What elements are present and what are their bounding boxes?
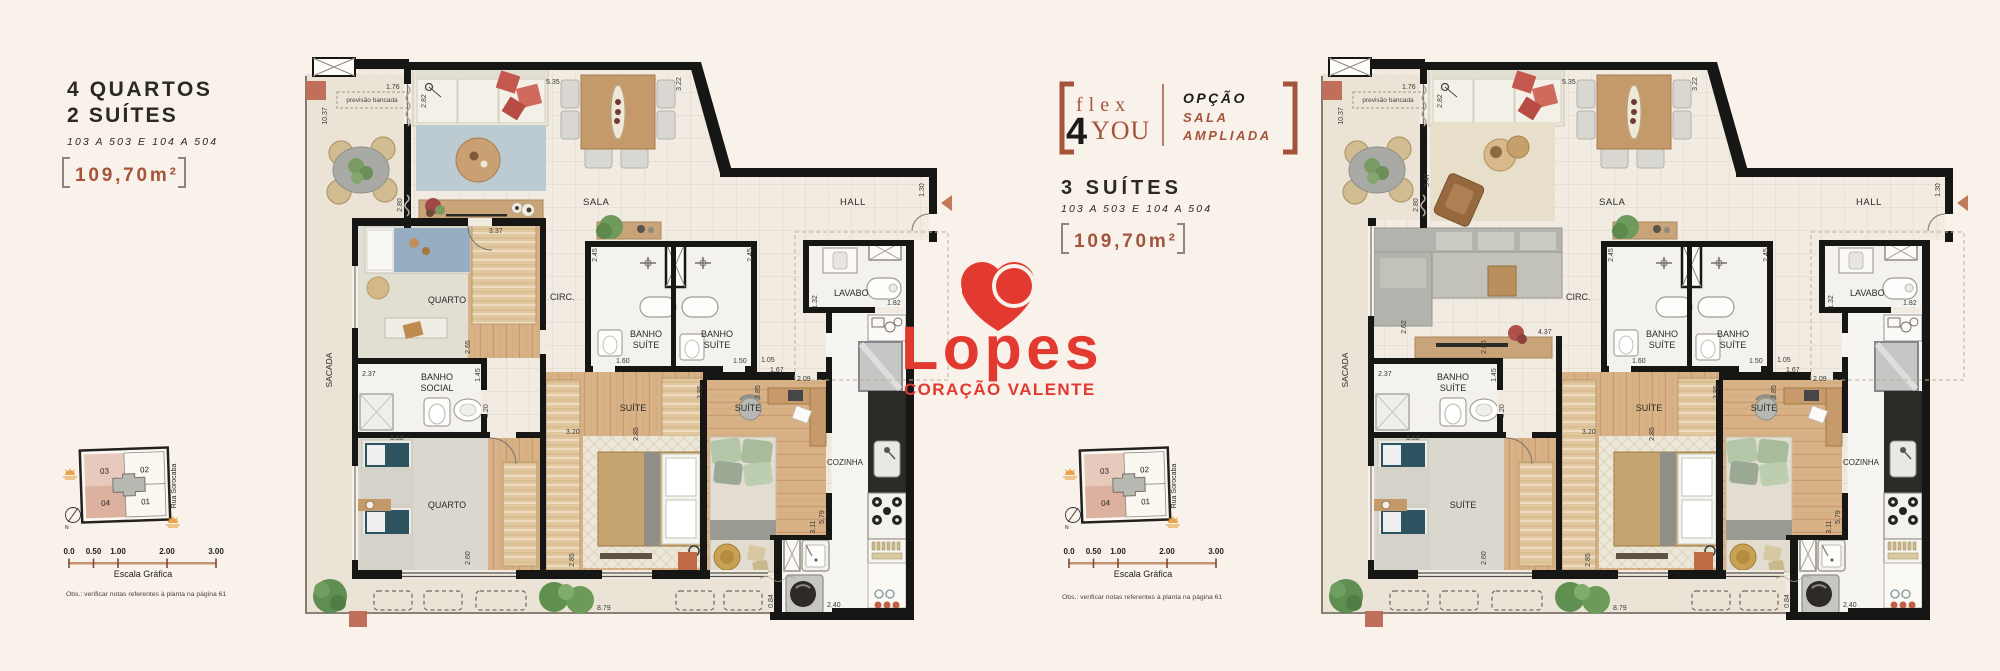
svg-text:0.50: 0.50 xyxy=(1086,547,1102,556)
svg-text:8.79: 8.79 xyxy=(1613,605,1627,612)
svg-text:1.00: 1.00 xyxy=(1110,547,1126,556)
svg-text:BANHO: BANHO xyxy=(421,372,453,382)
svg-text:2.60: 2.60 xyxy=(465,551,472,565)
svg-text:SACADA: SACADA xyxy=(1340,352,1350,387)
svg-text:5.79: 5.79 xyxy=(819,510,826,524)
svg-text:10.37: 10.37 xyxy=(322,107,329,125)
svg-text:SUÍTE: SUÍTE xyxy=(1440,383,1467,393)
svg-text:03: 03 xyxy=(100,467,110,476)
svg-text:Escala Gráfica: Escala Gráfica xyxy=(1114,569,1173,579)
svg-text:CIRC.: CIRC. xyxy=(1566,292,1591,302)
svg-text:0.0: 0.0 xyxy=(63,547,75,556)
svg-text:2 SUÍTES: 2 SUÍTES xyxy=(67,104,178,127)
svg-text:2.45: 2.45 xyxy=(747,248,754,262)
svg-text:2.37: 2.37 xyxy=(1378,371,1392,378)
svg-text:3.20: 3.20 xyxy=(1582,429,1596,436)
svg-text:5.35: 5.35 xyxy=(546,79,560,86)
svg-text:2.80: 2.80 xyxy=(1413,198,1420,212)
svg-text:01: 01 xyxy=(141,497,151,506)
svg-text:1.05: 1.05 xyxy=(1777,357,1791,364)
svg-text:SUÍTE: SUÍTE xyxy=(1720,340,1747,350)
svg-text:SUÍTE: SUÍTE xyxy=(704,340,731,350)
svg-text:2.40: 2.40 xyxy=(1843,602,1857,609)
svg-text:3.00: 3.00 xyxy=(208,547,224,556)
svg-text:OPÇÃO: OPÇÃO xyxy=(1183,89,1247,106)
svg-text:1.76: 1.76 xyxy=(386,84,400,91)
svg-text:1.20: 1.20 xyxy=(1499,404,1506,418)
svg-text:BANHO: BANHO xyxy=(1646,329,1678,339)
svg-text:previsão bancada: previsão bancada xyxy=(1362,97,1414,104)
svg-text:2.45: 2.45 xyxy=(1608,248,1615,262)
svg-text:1.60: 1.60 xyxy=(1632,358,1646,365)
svg-text:2.45: 2.45 xyxy=(1763,248,1770,262)
svg-text:BANHO: BANHO xyxy=(630,329,662,339)
svg-text:Rua Sorocaba: Rua Sorocaba xyxy=(171,464,178,509)
svg-text:1.50: 1.50 xyxy=(1749,358,1763,365)
svg-text:3.00: 3.00 xyxy=(1208,547,1224,556)
svg-text:BANHO: BANHO xyxy=(701,329,733,339)
svg-text:2.80: 2.80 xyxy=(397,198,404,212)
svg-text:3.22: 3.22 xyxy=(676,77,683,91)
svg-text:SUÍTE: SUÍTE xyxy=(633,340,660,350)
svg-text:2.00: 2.00 xyxy=(1159,547,1175,556)
svg-text:2.65: 2.65 xyxy=(1481,340,1488,354)
svg-text:SOCIAL: SOCIAL xyxy=(420,383,453,393)
svg-text:SACADA: SACADA xyxy=(324,352,334,387)
svg-text:04: 04 xyxy=(1101,499,1111,508)
svg-text:3.11: 3.11 xyxy=(1826,520,1833,533)
svg-text:4.37: 4.37 xyxy=(1538,329,1552,336)
svg-text:SUÍTE: SUÍTE xyxy=(735,403,762,413)
svg-text:Rua Sorocaba: Rua Sorocaba xyxy=(1171,464,1178,509)
svg-text:0.84: 0.84 xyxy=(1784,594,1791,608)
svg-text:BANHO: BANHO xyxy=(1437,372,1469,382)
svg-text:Lopes: Lopes xyxy=(901,314,1103,382)
svg-text:1.32: 1.32 xyxy=(812,295,819,309)
svg-text:SUÍTE: SUÍTE xyxy=(1649,340,1676,350)
svg-text:5.79: 5.79 xyxy=(1835,510,1842,524)
svg-text:SALA: SALA xyxy=(583,197,609,208)
svg-text:SUÍTE: SUÍTE xyxy=(620,403,647,413)
svg-text:LAVABO: LAVABO xyxy=(834,288,869,298)
svg-text:02: 02 xyxy=(140,465,150,474)
svg-text:1.05: 1.05 xyxy=(761,357,775,364)
svg-text:2.09: 2.09 xyxy=(797,376,811,383)
svg-text:Escala Gráfica: Escala Gráfica xyxy=(114,569,173,579)
svg-text:SUÍTE: SUÍTE xyxy=(1636,403,1663,413)
svg-text:109,70m²: 109,70m² xyxy=(75,165,179,186)
svg-text:5.47: 5.47 xyxy=(1424,173,1431,187)
svg-text:2.85: 2.85 xyxy=(1649,427,1656,441)
svg-text:03: 03 xyxy=(1100,467,1110,476)
svg-text:01: 01 xyxy=(1141,497,1151,506)
svg-text:3 SUÍTES: 3 SUÍTES xyxy=(1061,176,1182,199)
svg-text:1.30: 1.30 xyxy=(919,183,926,197)
svg-text:3.20: 3.20 xyxy=(566,429,580,436)
svg-text:1.45: 1.45 xyxy=(1491,368,1498,382)
svg-text:2.85: 2.85 xyxy=(1585,553,1592,567)
svg-text:0.84: 0.84 xyxy=(768,594,775,608)
svg-text:BANHO: BANHO xyxy=(1717,329,1749,339)
svg-text:COZINHA: COZINHA xyxy=(1843,458,1880,467)
svg-text:2.37: 2.37 xyxy=(362,371,376,378)
svg-text:QUARTO: QUARTO xyxy=(428,295,466,305)
svg-text:1.60: 1.60 xyxy=(616,358,630,365)
svg-text:HALL: HALL xyxy=(840,197,866,208)
svg-text:2.82: 2.82 xyxy=(421,94,428,108)
svg-text:Obs.: verificar notas referent: Obs.: verificar notas referentes à plant… xyxy=(66,591,226,598)
svg-text:1.82: 1.82 xyxy=(887,300,901,307)
svg-text:HALL: HALL xyxy=(1856,197,1882,208)
svg-text:2.00: 2.00 xyxy=(159,547,175,556)
svg-text:2.40: 2.40 xyxy=(827,602,841,609)
svg-text:1.50: 1.50 xyxy=(733,358,747,365)
svg-text:N: N xyxy=(1065,525,1069,531)
svg-text:1.76: 1.76 xyxy=(1402,84,1416,91)
svg-text:2.82: 2.82 xyxy=(1437,94,1444,108)
svg-text:04: 04 xyxy=(101,499,111,508)
svg-text:3.38: 3.38 xyxy=(390,435,404,442)
svg-text:8.79: 8.79 xyxy=(597,605,611,612)
svg-text:1.30: 1.30 xyxy=(1935,183,1942,197)
svg-text:1.20: 1.20 xyxy=(483,404,490,418)
svg-text:COZINHA: COZINHA xyxy=(827,458,864,467)
svg-text:CORAÇÃO VALENTE: CORAÇÃO VALENTE xyxy=(904,379,1096,399)
svg-text:2.65: 2.65 xyxy=(465,340,472,354)
svg-text:0.50: 0.50 xyxy=(86,547,102,556)
svg-text:2.45: 2.45 xyxy=(592,248,599,262)
svg-text:1.45: 1.45 xyxy=(475,368,482,382)
svg-text:02: 02 xyxy=(1140,465,1150,474)
svg-text:3.85: 3.85 xyxy=(755,385,762,399)
svg-text:2.85: 2.85 xyxy=(633,427,640,441)
svg-text:3.22: 3.22 xyxy=(1692,77,1699,91)
svg-text:SALA: SALA xyxy=(1599,197,1625,208)
svg-text:2.60: 2.60 xyxy=(1481,551,1488,565)
svg-text:109,70m²: 109,70m² xyxy=(1074,231,1178,252)
svg-text:1.00: 1.00 xyxy=(110,547,126,556)
svg-text:3.85: 3.85 xyxy=(1771,385,1778,399)
svg-text:AMPLIADA: AMPLIADA xyxy=(1182,128,1272,143)
svg-text:N: N xyxy=(65,525,69,531)
svg-text:CIRC.: CIRC. xyxy=(550,292,575,302)
svg-text:Obs.: verificar notas referent: Obs.: verificar notas referentes à plant… xyxy=(1062,594,1222,601)
svg-text:1.67: 1.67 xyxy=(770,367,784,374)
svg-text:3.37: 3.37 xyxy=(489,228,503,235)
svg-text:4: 4 xyxy=(1066,111,1087,153)
svg-text:previsão bancada: previsão bancada xyxy=(346,97,398,104)
svg-text:2.09: 2.09 xyxy=(1813,376,1827,383)
svg-text:1.67: 1.67 xyxy=(1786,367,1800,374)
svg-text:LAVABO: LAVABO xyxy=(1850,288,1885,298)
svg-text:YOU: YOU xyxy=(1091,116,1150,145)
svg-text:10.37: 10.37 xyxy=(1338,107,1345,125)
svg-text:0.0: 0.0 xyxy=(1063,547,1075,556)
svg-text:4 QUARTOS: 4 QUARTOS xyxy=(67,78,213,101)
svg-text:3.11: 3.11 xyxy=(810,520,817,533)
svg-text:2.85: 2.85 xyxy=(569,553,576,567)
svg-text:3.38: 3.38 xyxy=(1406,435,1420,442)
svg-text:SALA: SALA xyxy=(1183,110,1228,125)
svg-text:3.85: 3.85 xyxy=(1713,385,1720,399)
svg-text:SUÍTE: SUÍTE xyxy=(1751,403,1778,413)
svg-text:3.85: 3.85 xyxy=(697,385,704,399)
svg-text:2.62: 2.62 xyxy=(1401,320,1408,334)
svg-text:5.35: 5.35 xyxy=(1562,79,1576,86)
svg-text:103 A 503 E 104 A 504: 103 A 503 E 104 A 504 xyxy=(1061,203,1212,215)
svg-text:QUARTO: QUARTO xyxy=(428,500,466,510)
svg-text:1.32: 1.32 xyxy=(1828,295,1835,309)
svg-text:103 A 503 E 104 A 504: 103 A 503 E 104 A 504 xyxy=(67,136,218,148)
svg-text:SUÍTE: SUÍTE xyxy=(1450,500,1477,510)
svg-text:1.82: 1.82 xyxy=(1903,300,1917,307)
